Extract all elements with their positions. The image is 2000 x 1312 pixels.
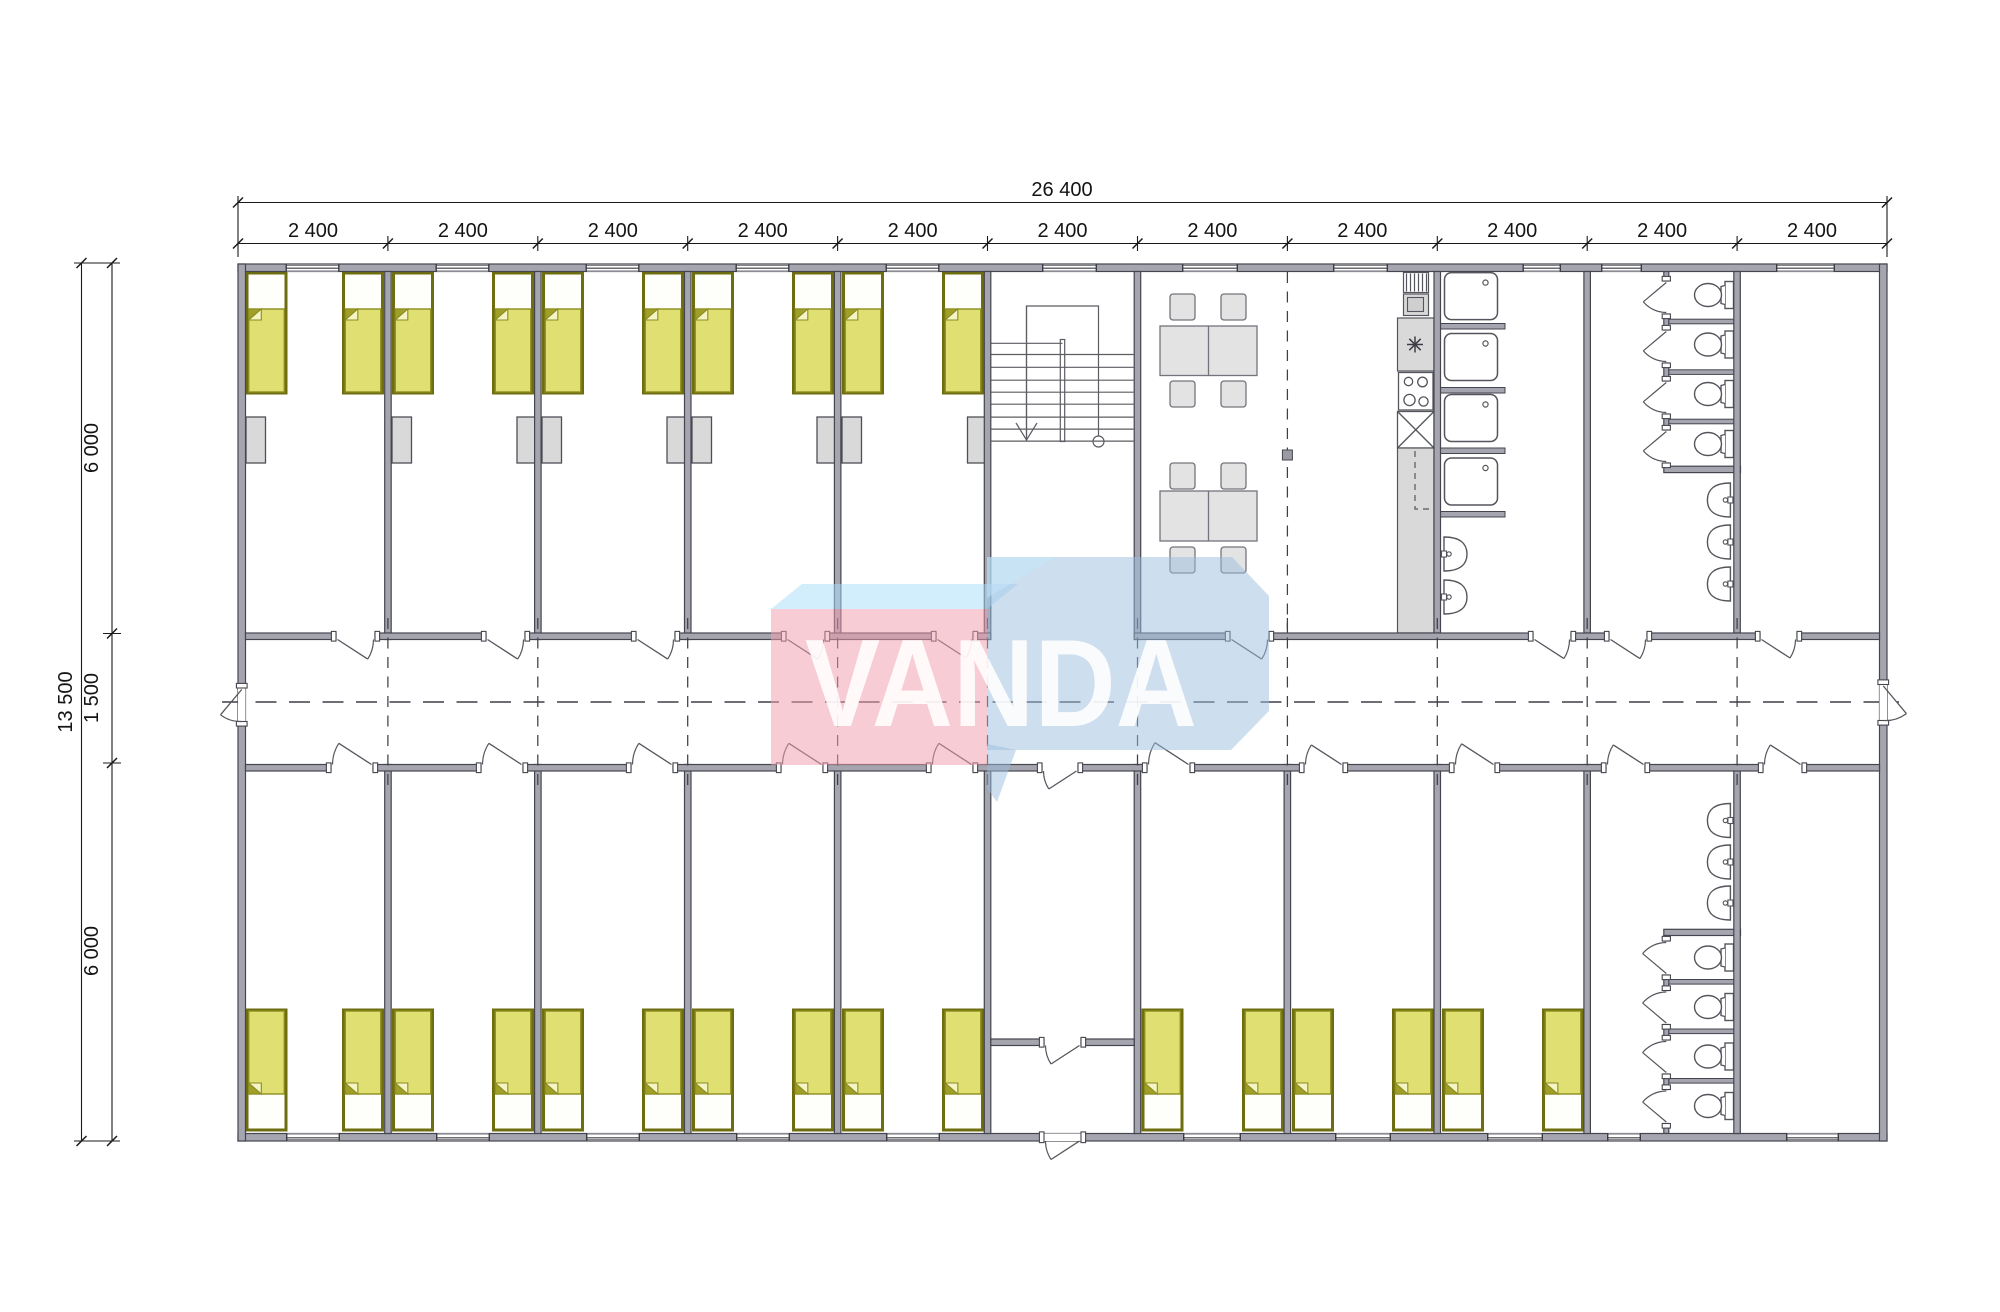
svg-text:2 400: 2 400 bbox=[588, 220, 638, 242]
svg-text:2 400: 2 400 bbox=[1187, 220, 1237, 242]
svg-text:VANDA: VANDA bbox=[805, 615, 1197, 753]
svg-text:6 000: 6 000 bbox=[81, 423, 103, 473]
svg-text:2 400: 2 400 bbox=[888, 220, 938, 242]
svg-text:2 400: 2 400 bbox=[1787, 220, 1837, 242]
svg-text:13 500: 13 500 bbox=[55, 671, 77, 732]
svg-text:2 400: 2 400 bbox=[1487, 220, 1537, 242]
svg-text:2 400: 2 400 bbox=[288, 220, 338, 242]
svg-text:2 400: 2 400 bbox=[1337, 220, 1387, 242]
svg-text:26 400: 26 400 bbox=[1031, 179, 1092, 201]
svg-text:1 500: 1 500 bbox=[81, 673, 103, 723]
svg-text:2 400: 2 400 bbox=[1637, 220, 1687, 242]
svg-text:2 400: 2 400 bbox=[438, 220, 488, 242]
svg-text:2 400: 2 400 bbox=[1037, 220, 1087, 242]
svg-text:2 400: 2 400 bbox=[738, 220, 788, 242]
svg-text:6 000: 6 000 bbox=[81, 926, 103, 976]
